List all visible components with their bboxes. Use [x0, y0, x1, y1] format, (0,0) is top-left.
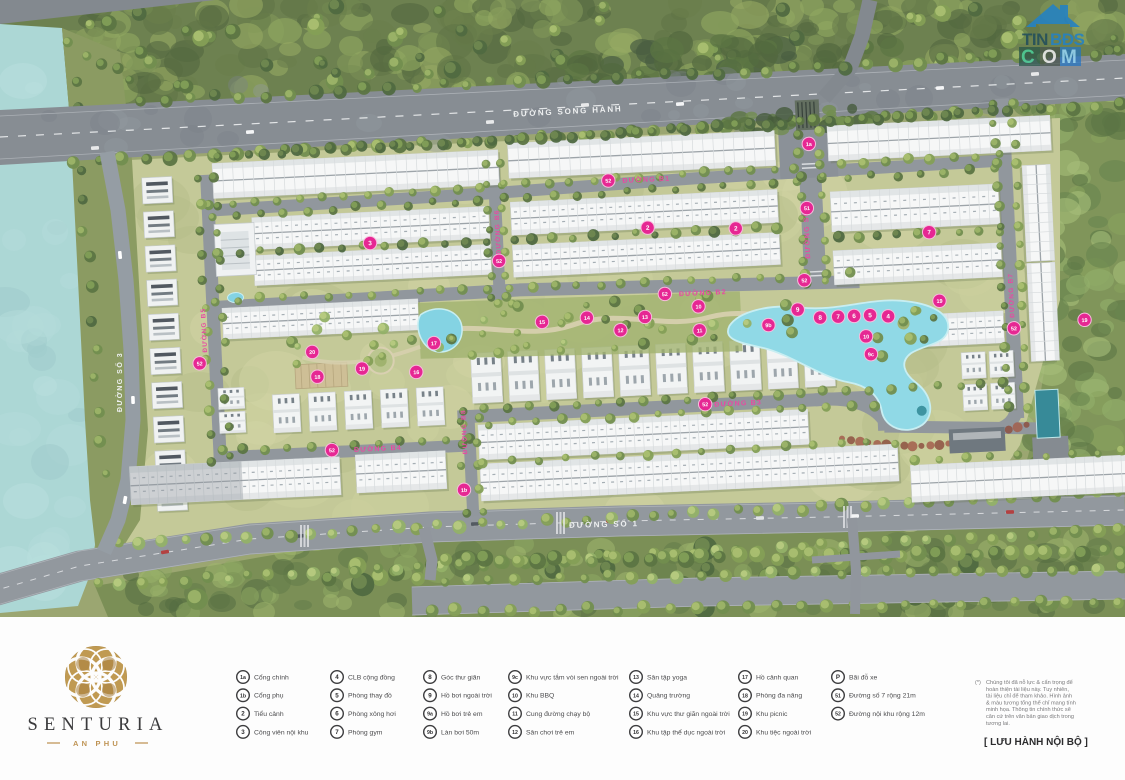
svg-text:Hồ cảnh quan: Hồ cảnh quan [756, 672, 799, 681]
svg-text:14: 14 [633, 693, 639, 699]
svg-text:CLB cộng đồng: CLB cộng đồng [348, 672, 395, 681]
svg-text:Chúng tôi đã nỗ lực & cẩn trọn: Chúng tôi đã nỗ lực & cẩn trọng để [986, 679, 1073, 686]
svg-text:(*): (*) [975, 680, 981, 686]
svg-text:7: 7 [335, 729, 339, 736]
svg-text:4: 4 [335, 674, 339, 681]
svg-text:tương lai.: tương lai. [986, 721, 1010, 727]
svg-text:16: 16 [633, 730, 639, 736]
svg-text:Đường nội khu rộng 12m: Đường nội khu rộng 12m [849, 711, 925, 718]
svg-text:[ LƯU HÀNH NỘI BỘ ]: [ LƯU HÀNH NỘI BỘ ] [984, 735, 1088, 748]
svg-text:18: 18 [742, 693, 748, 699]
svg-text:minh họa. Thông tin chính thức: minh họa. Thông tin chính thức sẽ [986, 707, 1071, 713]
svg-text:Khu BBQ: Khu BBQ [526, 693, 554, 700]
svg-text:Cung đường chạy bộ: Cung đường chạy bộ [526, 711, 590, 718]
svg-text:11: 11 [512, 712, 518, 718]
svg-text:13: 13 [633, 675, 639, 681]
svg-text:10: 10 [512, 693, 518, 699]
svg-text:9b: 9b [427, 730, 433, 736]
svg-text:Phòng đa năng: Phòng đa năng [756, 693, 802, 700]
svg-text:Khu tập thể dục ngoài trời: Khu tập thể dục ngoài trời [647, 728, 726, 736]
svg-text:căn cứ trên văn bản giao dịch: căn cứ trên văn bản giao dịch trong [986, 714, 1074, 720]
svg-text:52: 52 [835, 712, 841, 718]
svg-text:15: 15 [633, 712, 639, 718]
svg-text:Khu vực thư giãn ngoài trời: Khu vực thư giãn ngoài trời [647, 711, 730, 718]
svg-text:17: 17 [742, 675, 748, 681]
svg-text:19: 19 [742, 712, 748, 718]
svg-text:Góc thư giãn: Góc thư giãn [441, 674, 481, 681]
svg-text:Bãi đỗ xe: Bãi đỗ xe [849, 672, 878, 681]
svg-text:8: 8 [428, 674, 432, 681]
svg-text:Khu picnic: Khu picnic [756, 711, 788, 718]
svg-text:12: 12 [512, 730, 518, 736]
svg-text:Tiểu cảnh: Tiểu cảnh [254, 710, 284, 718]
svg-text:Làn bơi 50m: Làn bơi 50m [441, 729, 479, 736]
svg-text:Cổng chính: Cổng chính [254, 673, 289, 681]
svg-text:AN PHU: AN PHU [73, 739, 121, 748]
svg-text:3: 3 [241, 729, 245, 736]
svg-text:9a: 9a [427, 712, 433, 718]
svg-text:Cổng phụ: Cổng phụ [254, 692, 284, 700]
svg-text:20: 20 [742, 730, 748, 736]
svg-text:Phòng thay đồ: Phòng thay đồ [348, 691, 392, 700]
svg-text:Phòng xông hơi: Phòng xông hơi [348, 711, 396, 718]
svg-text:tài liệu chỉ để tham khảo. Hìn: tài liệu chỉ để tham khảo. Hình ảnh [986, 693, 1072, 700]
svg-text:Khu tiệc ngoài trời: Khu tiệc ngoài trời [756, 729, 812, 736]
svg-text:5: 5 [335, 692, 339, 699]
svg-text:1b: 1b [240, 693, 246, 699]
svg-text:2: 2 [241, 711, 245, 718]
svg-text:Khu vực tắm vòi sen ngoài trời: Khu vực tắm vòi sen ngoài trời [526, 672, 619, 681]
svg-text:9c: 9c [512, 675, 518, 681]
svg-text:Hồ bơi trẻ em: Hồ bơi trẻ em [441, 709, 483, 718]
svg-text:1a: 1a [240, 675, 246, 681]
svg-text:SENTURIA: SENTURIA [27, 715, 168, 735]
svg-text:6: 6 [335, 711, 339, 718]
svg-text:Đường số 7 rộng 21m: Đường số 7 rộng 21m [849, 691, 916, 700]
svg-text:51: 51 [835, 693, 841, 699]
svg-text:9: 9 [428, 692, 432, 699]
svg-text:P: P [836, 674, 840, 681]
svg-text:Công viên nội khu: Công viên nội khu [254, 729, 309, 736]
svg-text:Quảng trường: Quảng trường [647, 693, 690, 700]
svg-text:Phòng gym: Phòng gym [348, 729, 383, 736]
svg-text:Sân chơi trẻ em: Sân chơi trẻ em [526, 729, 575, 736]
svg-text:Hồ bơi ngoài trời: Hồ bơi ngoài trời [441, 691, 492, 700]
svg-text:& màu tương tổng thể chỉ mang: & màu tương tổng thể chỉ mang tính [986, 699, 1076, 706]
svg-text:hoàn thiện tài liệu này. Tuy n: hoàn thiện tài liệu này. Tuy nhiên, [986, 687, 1069, 693]
svg-text:Sân tập yoga: Sân tập yoga [647, 674, 687, 681]
